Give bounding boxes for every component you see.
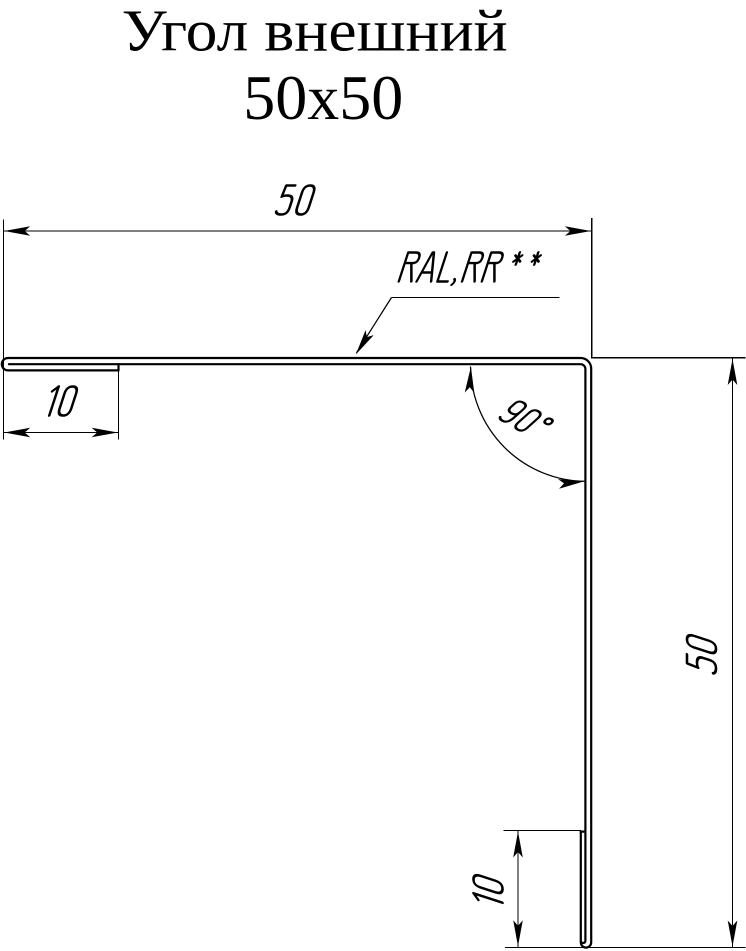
svg-text:50x50: 50x50 — [243, 62, 403, 133]
svg-text:Угол внешний: Угол внешний — [122, 0, 508, 63]
